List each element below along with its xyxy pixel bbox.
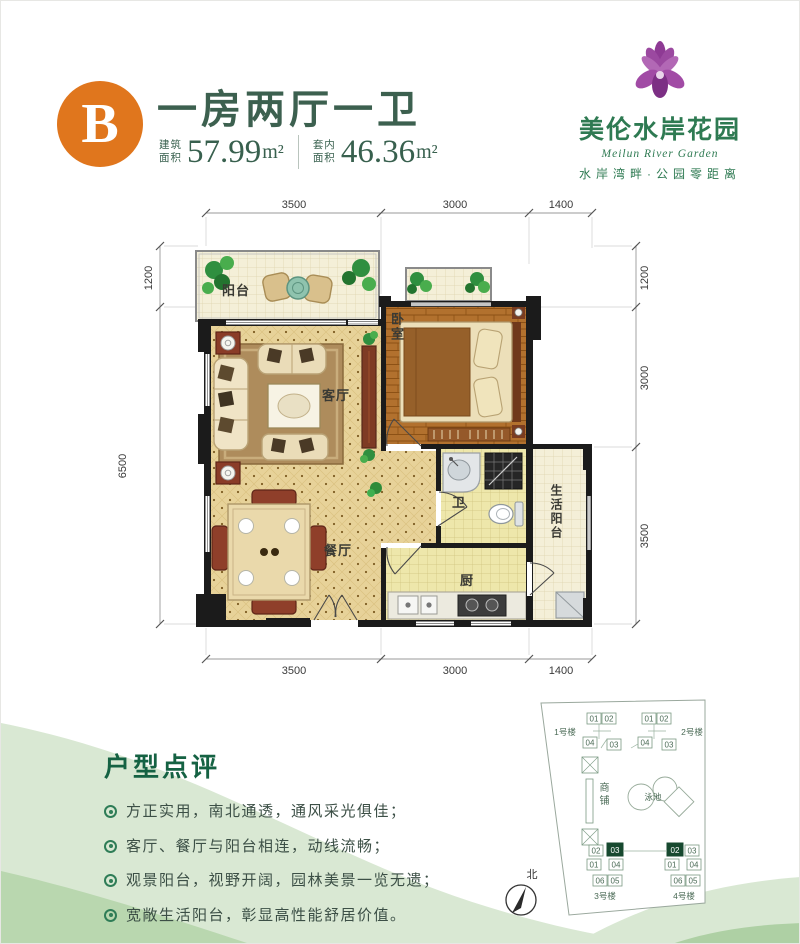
review-point: 客厅、餐厅与阳台相连，动线流畅； xyxy=(126,837,390,857)
b3-unit: 04 xyxy=(612,861,621,870)
room-label-balcony: 阳台 xyxy=(222,280,250,299)
service-balcony-fixtures xyxy=(556,592,584,618)
b2-unit: 01 xyxy=(645,715,654,724)
room-label-bath: 卫 xyxy=(452,492,466,511)
dim-right-3000: 3000 xyxy=(639,366,651,390)
b3-unit: 01 xyxy=(590,861,599,870)
b3-unit: 05 xyxy=(611,877,620,886)
brand-tagline: 水岸湾畔·公园零距离 xyxy=(541,165,779,182)
inner-area-label-line1: 套内 xyxy=(313,139,336,152)
b4-unit: 04 xyxy=(690,861,699,870)
balcony-table xyxy=(287,277,309,299)
b4-unit: 05 xyxy=(689,877,698,886)
floorplan: 3500 3000 1400 3500 3000 1400 1200 6500 … xyxy=(86,196,706,676)
unit-type-letter: B xyxy=(81,92,118,156)
bullet-icon xyxy=(104,874,117,887)
built-area-label-line2: 面积 xyxy=(159,152,182,165)
area-info: 建筑 面积 57.99 m² 套内 面积 46.36 m² xyxy=(159,135,438,169)
b1-unit: 01 xyxy=(590,715,599,724)
dining-furniture xyxy=(212,490,326,614)
dim-bottom-3500: 3500 xyxy=(282,665,306,676)
dim-top-3000: 3000 xyxy=(443,199,467,211)
brand-name-english: Meilun River Garden xyxy=(541,148,779,160)
building3-label: 3号楼 xyxy=(594,891,616,901)
bullet-icon xyxy=(104,909,117,922)
dim-left-6500: 6500 xyxy=(117,454,129,478)
b2-unit: 03 xyxy=(665,741,674,750)
review-point: 观景阳台，视野开阔，园林美景一览无遗； xyxy=(126,871,440,891)
dim-top-1400: 1400 xyxy=(549,199,573,211)
b3-unit: 06 xyxy=(596,877,605,886)
inner-area-label-line2: 面积 xyxy=(313,152,336,165)
north-label: 北 xyxy=(527,868,538,881)
review-point-row: 观景阳台，视野开阔，园林美景一览无遗； xyxy=(104,871,524,891)
layout-review: 户型点评 方正实用，南北通透，通风采光俱佳； 客厅、餐厅与阳台相连，动线流畅； … xyxy=(104,747,524,940)
room-label-service-balcony: 生活阳台 xyxy=(548,484,565,540)
dim-right-3500: 3500 xyxy=(639,524,651,548)
inner-area-label: 套内 面积 xyxy=(313,139,336,164)
dining-table xyxy=(228,504,310,600)
b4-unit: 03 xyxy=(688,847,697,856)
review-point-row: 客厅、餐厅与阳台相连，动线流畅； xyxy=(104,837,524,857)
room-label-kitchen: 厨 xyxy=(460,570,474,589)
north-arrow-icon: 北 xyxy=(506,868,538,915)
review-title: 户型点评 xyxy=(104,747,524,784)
dim-right-1200: 1200 xyxy=(639,266,651,290)
b3-unit: 02 xyxy=(592,847,601,856)
shops-label: 商铺 xyxy=(595,782,610,808)
stove xyxy=(458,595,506,616)
room-label-dining: 餐厅 xyxy=(324,540,352,559)
b1-unit: 02 xyxy=(605,715,614,724)
review-point: 方正实用，南北通透，通风采光俱佳； xyxy=(126,802,407,822)
built-area-value: 57.99 xyxy=(187,136,261,169)
pool-label: 泳池 xyxy=(644,792,662,802)
review-point: 宽敞生活阳台，彰显高性能舒居价值。 xyxy=(126,906,407,926)
room-label-bedroom: 卧室 xyxy=(387,312,406,342)
building2-label: 2号楼 xyxy=(681,727,703,737)
b4-unit: 01 xyxy=(668,861,677,870)
dim-bottom-3000: 3000 xyxy=(443,665,467,676)
room-label-living: 客厅 xyxy=(322,385,350,404)
building1-label: 1号楼 xyxy=(554,727,576,737)
review-point-row: 宽敞生活阳台，彰显高性能舒居价值。 xyxy=(104,906,524,926)
dim-top-3500: 3500 xyxy=(282,199,306,211)
b4-unit-highlighted: 02 xyxy=(671,846,680,855)
dim-bottom-1400: 1400 xyxy=(549,665,573,676)
page-title: 一房两厅一卫 xyxy=(157,77,421,135)
b1-unit: 04 xyxy=(586,739,595,748)
built-area-unit: m² xyxy=(262,141,284,164)
b2-unit: 02 xyxy=(660,715,669,724)
inner-area-value: 46.36 xyxy=(341,136,415,169)
toilet-tank xyxy=(515,502,523,526)
building4-label: 4号楼 xyxy=(673,891,695,901)
orchid-flower-icon xyxy=(621,39,699,103)
built-area-label: 建筑 面积 xyxy=(159,139,182,164)
built-area-label-line1: 建筑 xyxy=(159,139,182,152)
b4-unit: 06 xyxy=(674,877,683,886)
flyer-page: B 一房两厅一卫 建筑 面积 57.99 m² 套内 面积 46.36 m² xyxy=(0,0,800,944)
bullet-icon xyxy=(104,840,117,853)
bedroom-furniture xyxy=(400,306,525,441)
bullet-icon xyxy=(104,805,117,818)
inner-area-unit: m² xyxy=(416,141,438,164)
dim-left-1200: 1200 xyxy=(143,266,155,290)
area-divider xyxy=(298,135,299,169)
brand-name: 美伦水岸花园 xyxy=(541,110,779,146)
kitchen-fixtures xyxy=(388,592,526,619)
floorplan-drawing: 3500 3000 1400 3500 3000 1400 1200 6500 … xyxy=(86,196,706,676)
b1-unit: 03 xyxy=(610,741,619,750)
unit-type-badge: B xyxy=(57,81,143,167)
bed-headboard xyxy=(512,322,521,422)
b3-unit-highlighted: 03 xyxy=(611,846,620,855)
review-point-row: 方正实用，南北通透，通风采光俱佳； xyxy=(104,802,524,822)
b2-unit: 04 xyxy=(641,739,650,748)
brand-logo: 美伦水岸花园 Meilun River Garden 水岸湾畔·公园零距离 xyxy=(541,39,779,182)
dresser xyxy=(428,428,510,441)
site-plan: 01 02 04 03 1号楼 01 02 04 03 2号楼 xyxy=(481,693,781,943)
